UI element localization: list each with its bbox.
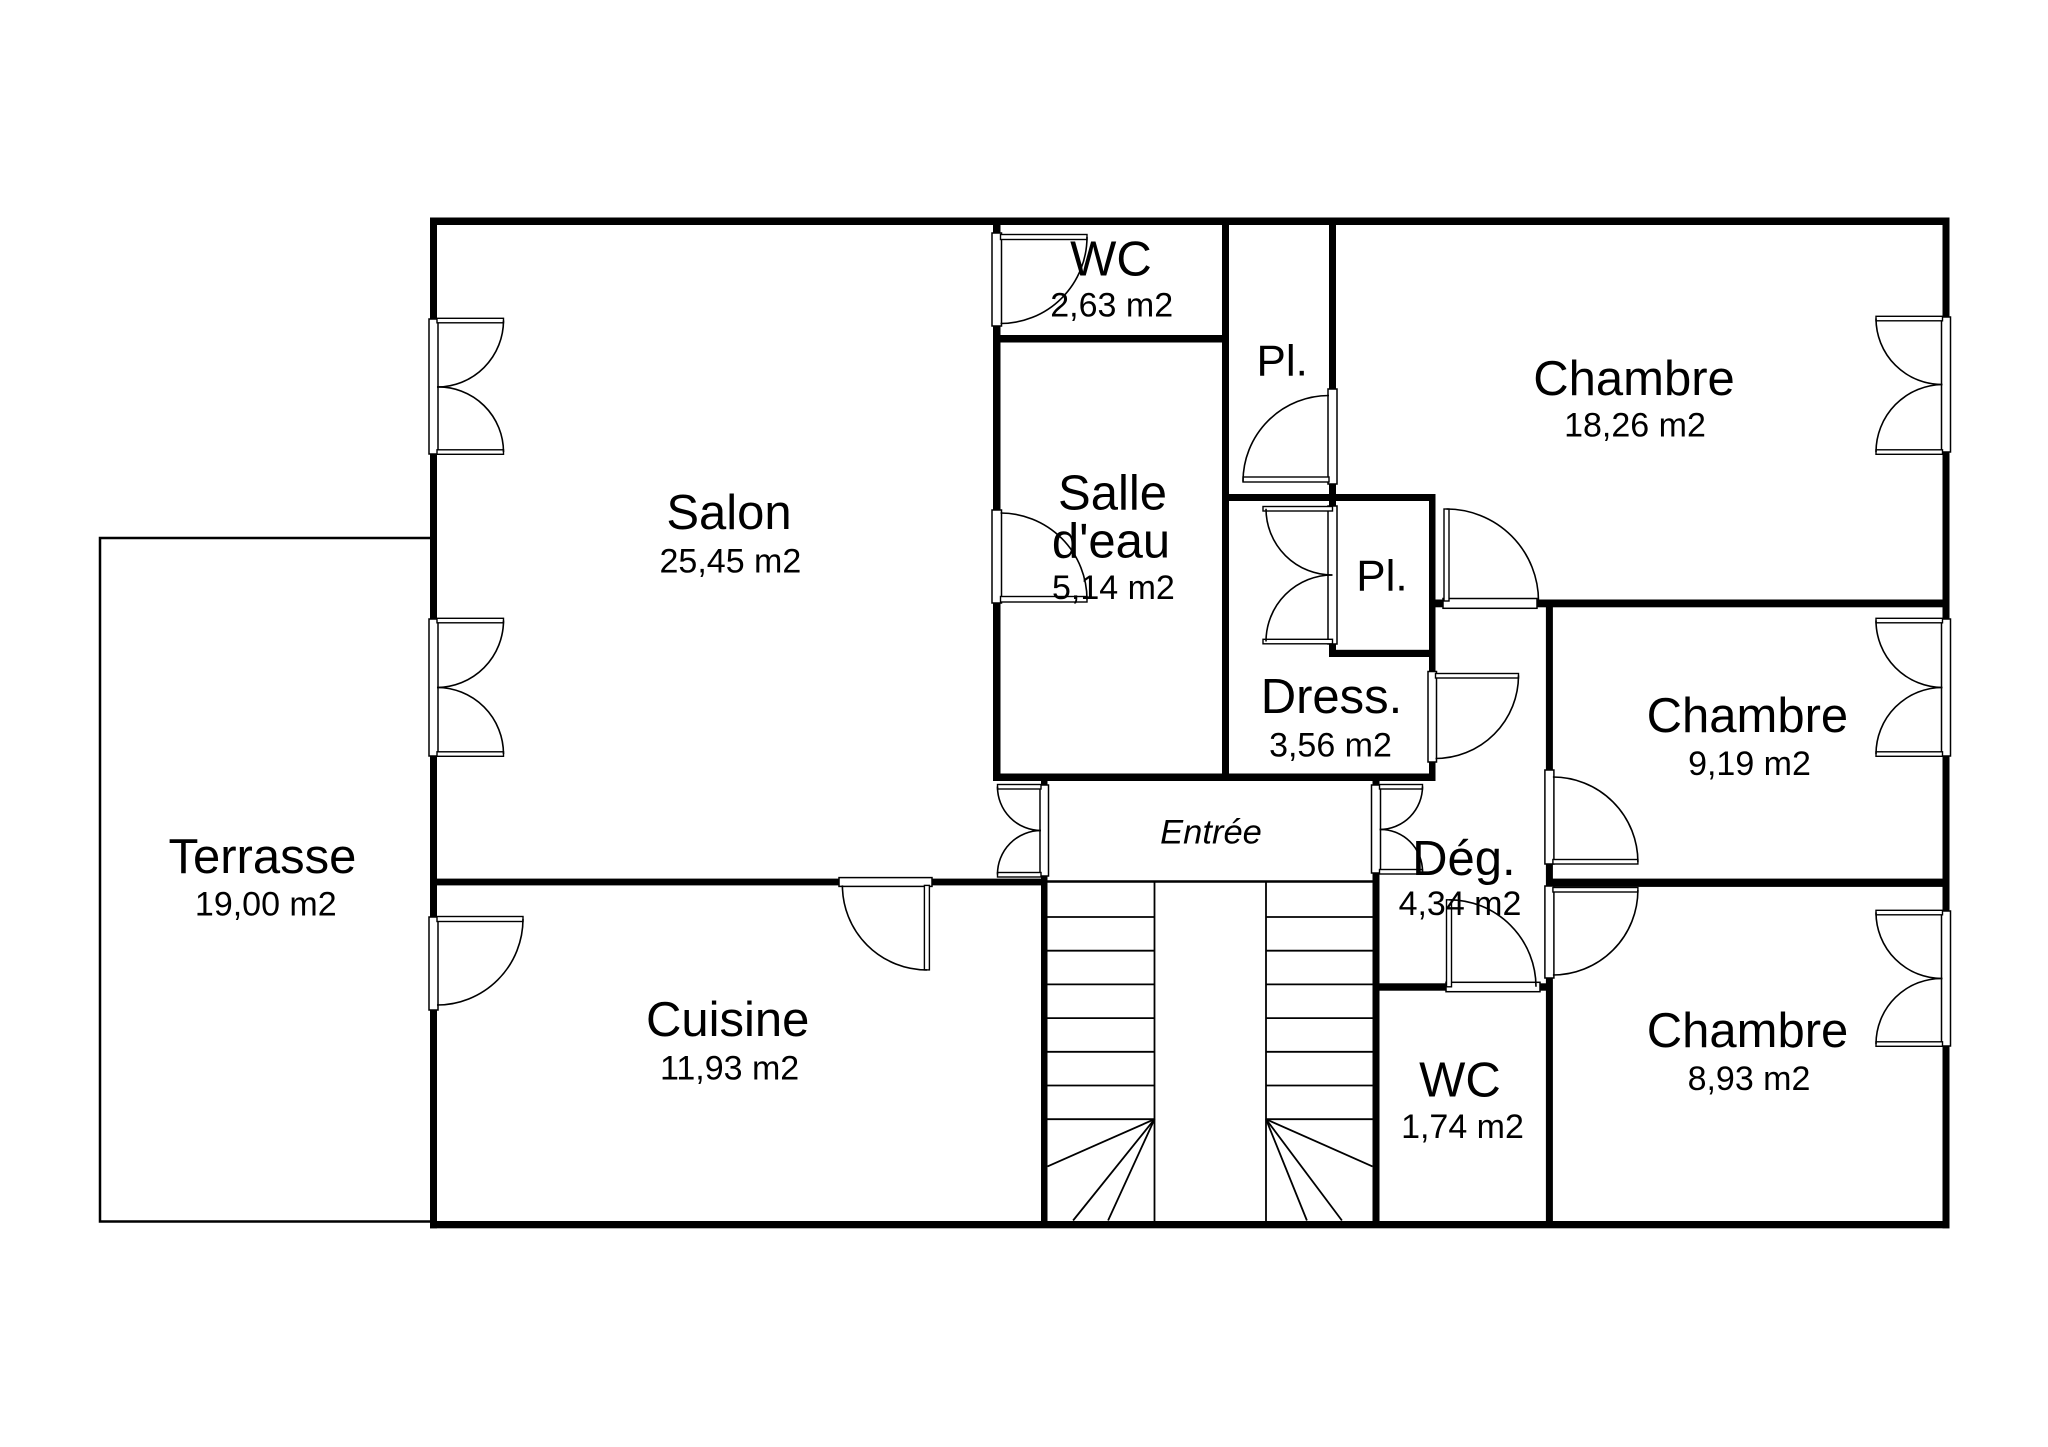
svg-text:9,19 m2: 9,19 m2 xyxy=(1688,745,1811,783)
svg-text:Pl.: Pl. xyxy=(1257,336,1308,385)
svg-text:4,34 m2: 4,34 m2 xyxy=(1399,885,1522,923)
svg-text:Pl.: Pl. xyxy=(1356,551,1407,600)
svg-text:Dég.: Dég. xyxy=(1412,832,1516,886)
svg-text:11,93 m2: 11,93 m2 xyxy=(660,1050,799,1088)
svg-text:Dress.: Dress. xyxy=(1261,670,1403,724)
svg-text:Terrasse: Terrasse xyxy=(168,830,356,884)
svg-text:3,56 m2: 3,56 m2 xyxy=(1269,727,1392,765)
svg-text:5,14 m2: 5,14 m2 xyxy=(1052,569,1175,607)
svg-text:Salle: Salle xyxy=(1058,467,1167,521)
svg-text:Chambre: Chambre xyxy=(1533,352,1735,406)
svg-text:WC: WC xyxy=(1419,1054,1501,1108)
svg-text:Chambre: Chambre xyxy=(1647,689,1849,743)
svg-text:8,93 m2: 8,93 m2 xyxy=(1688,1060,1811,1098)
svg-text:18,26 m2: 18,26 m2 xyxy=(1564,407,1706,445)
svg-text:Salon: Salon xyxy=(666,486,791,540)
svg-text:1,74 m2: 1,74 m2 xyxy=(1401,1108,1524,1146)
svg-text:Entrée: Entrée xyxy=(1160,813,1262,851)
svg-text:Cuisine: Cuisine xyxy=(646,993,809,1047)
svg-text:25,45 m2: 25,45 m2 xyxy=(660,543,802,581)
svg-text:19,00 m2: 19,00 m2 xyxy=(195,886,337,924)
svg-text:2,63 m2: 2,63 m2 xyxy=(1050,287,1173,325)
svg-text:d'eau: d'eau xyxy=(1052,514,1170,568)
svg-text:Chambre: Chambre xyxy=(1647,1004,1849,1058)
svg-text:WC: WC xyxy=(1070,233,1152,287)
